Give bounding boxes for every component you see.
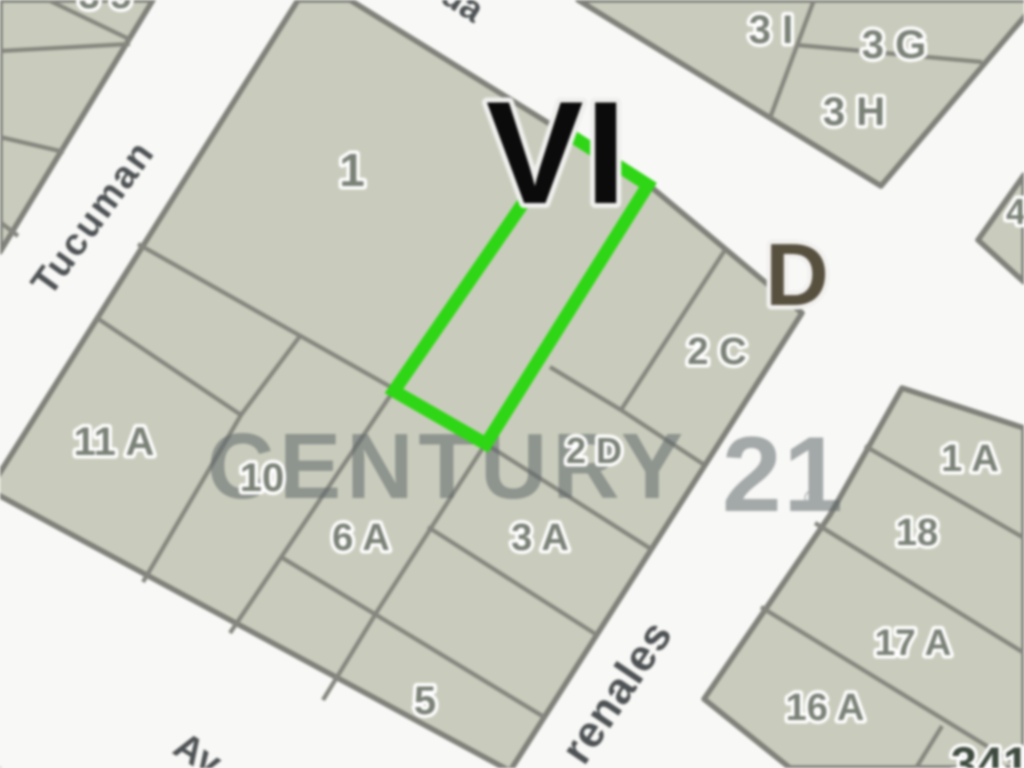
svg-text:VI: VI [486,71,628,234]
svg-text:10: 10 [240,456,285,500]
svg-text:1 A: 1 A [941,438,999,480]
svg-text:®: ® [804,486,820,511]
svg-text:6 A: 6 A [332,517,390,559]
svg-text:3 5: 3 5 [79,0,132,17]
svg-text:2 D: 2 D [566,430,622,471]
svg-text:11 A: 11 A [74,420,155,464]
svg-text:341: 341 [951,737,1024,768]
svg-text:5: 5 [414,679,436,723]
svg-text:1: 1 [339,144,365,196]
svg-text:16 A: 16 A [786,687,865,729]
svg-text:21: 21 [722,414,845,534]
svg-text:D: D [765,225,829,324]
svg-text:18: 18 [896,512,938,554]
svg-text:17 A: 17 A [875,622,952,663]
svg-text:3 H: 3 H [823,90,885,134]
svg-text:3 G: 3 G [862,23,926,67]
svg-text:3 I: 3 I [749,8,793,52]
svg-text:3 A: 3 A [511,517,569,559]
svg-text:2 C: 2 C [687,331,746,373]
svg-text:4: 4 [1006,191,1024,232]
